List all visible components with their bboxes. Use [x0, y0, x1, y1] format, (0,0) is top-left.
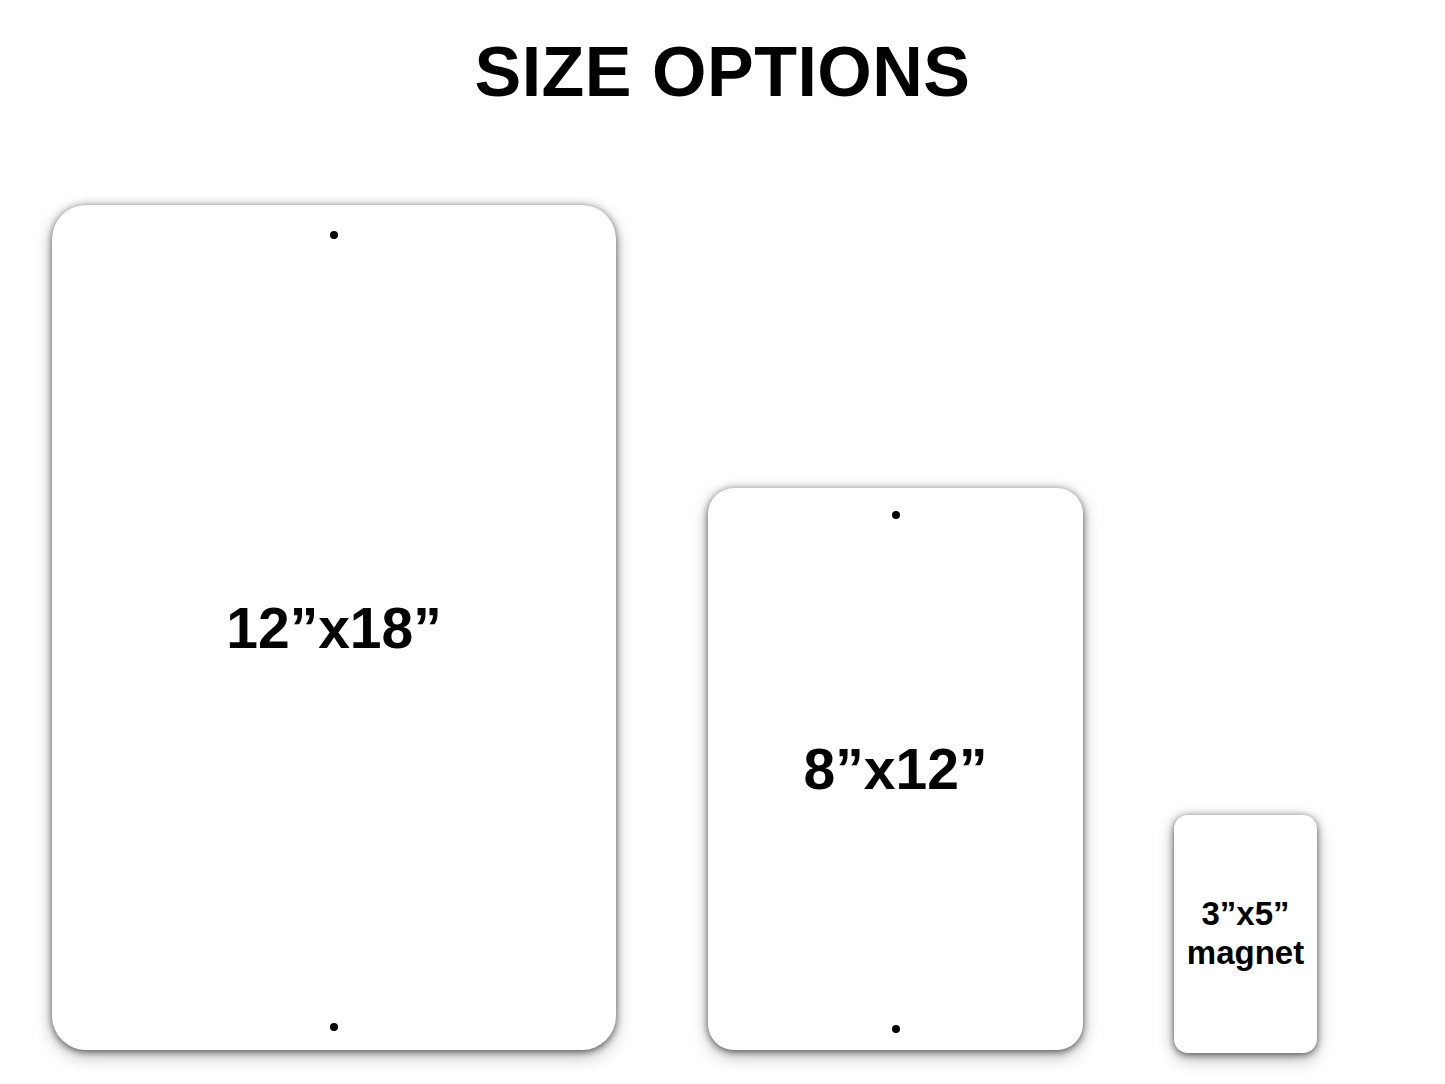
magnet-size-text: 3”x5”	[1187, 895, 1304, 934]
panel-sign-8x12-label: 8”x12”	[804, 736, 988, 802]
mounting-hole-bottom	[892, 1025, 900, 1033]
page-title: SIZE OPTIONS	[0, 32, 1445, 112]
mounting-hole-top	[330, 231, 338, 239]
panel-sign-8x12: 8”x12”	[708, 488, 1083, 1050]
panel-sign-12x18: 12”x18”	[52, 205, 616, 1050]
size-options-graphic: SIZE OPTIONS 12”x18” 8”x12” 3”x5” magnet	[0, 0, 1445, 1084]
panel-sign-12x18-label: 12”x18”	[226, 595, 442, 661]
panel-magnet-3x5: 3”x5” magnet	[1174, 815, 1317, 1053]
mounting-hole-top	[892, 511, 900, 519]
mounting-hole-bottom	[330, 1023, 338, 1031]
panel-magnet-3x5-label: 3”x5” magnet	[1187, 895, 1304, 973]
magnet-type-text: magnet	[1187, 934, 1304, 973]
